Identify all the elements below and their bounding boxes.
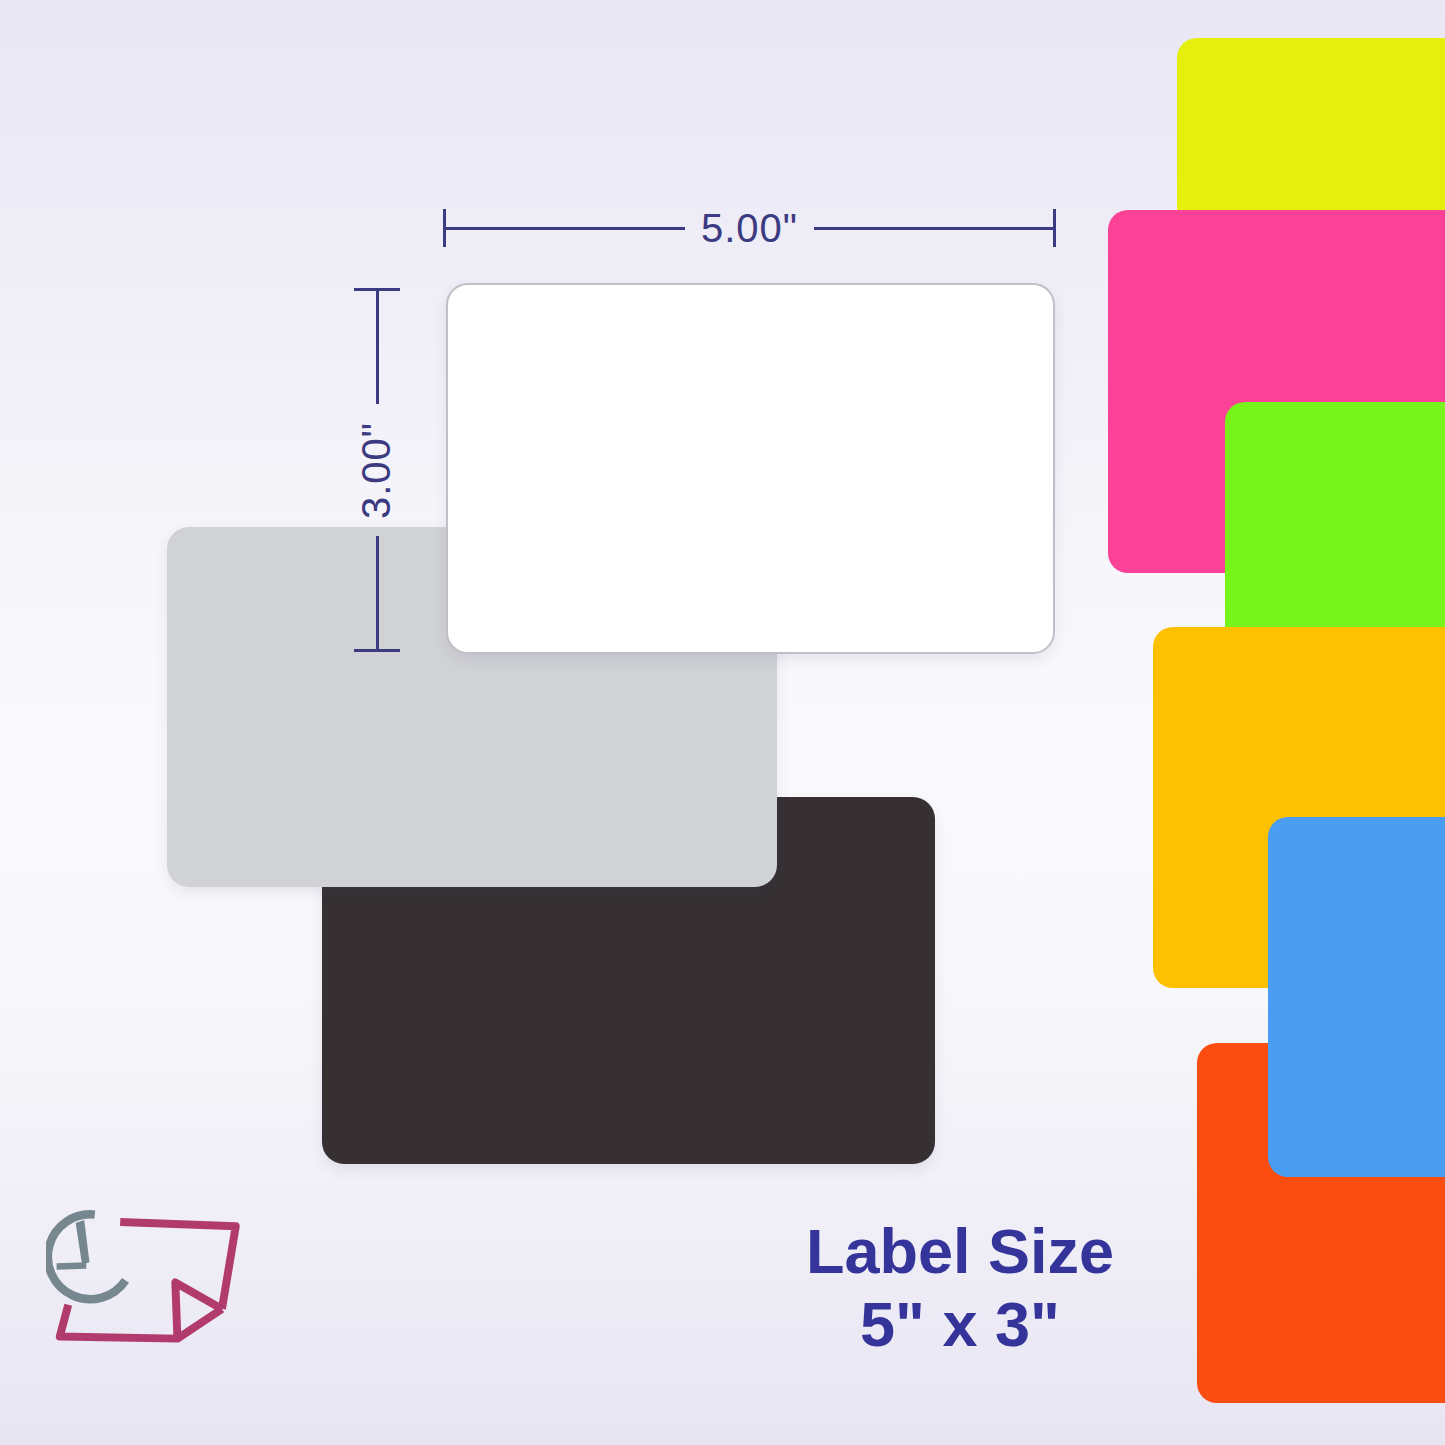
dimension-line-segment (814, 227, 1053, 230)
dimension-line-segment (376, 291, 379, 404)
swatch-blue (1268, 817, 1445, 1177)
width-dimension-label: 5.00" (701, 206, 798, 251)
dimension-tick-bottom (354, 649, 400, 652)
height-dimension: 3.00" (354, 288, 400, 652)
width-dimension: 5.00" (443, 209, 1056, 247)
height-dimension-label-box: 3.00" (354, 404, 400, 536)
clock-icon (48, 1214, 126, 1299)
brand-logo (46, 1190, 258, 1377)
label-size-product-image: 5.00" 3.00" Label Size 5" x 3" (0, 0, 1445, 1445)
caption-line-2: 5" x 3" (690, 1288, 1230, 1361)
dimension-line-segment (376, 536, 379, 649)
caption: Label Size 5" x 3" (690, 1215, 1230, 1361)
dimension-line-segment (446, 227, 685, 230)
label-sample-white (446, 283, 1055, 654)
caption-line-1: Label Size (690, 1215, 1230, 1288)
dimension-tick-right (1053, 209, 1056, 247)
height-dimension-label: 3.00" (355, 421, 400, 518)
